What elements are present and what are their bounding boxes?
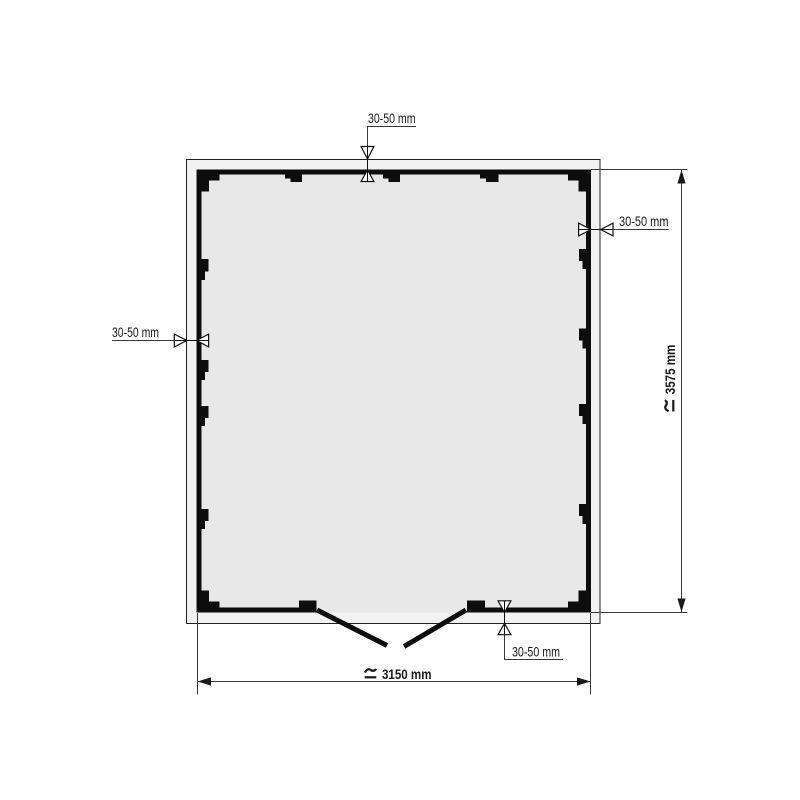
svg-text:30-50 mm: 30-50 mm [619, 213, 669, 229]
svg-text:30-50 mm: 30-50 mm [512, 644, 560, 660]
svg-text:3575 mm: 3575 mm [663, 345, 679, 395]
svg-text:30-50 mm: 30-50 mm [112, 324, 159, 340]
svg-text:30-50 mm: 30-50 mm [368, 110, 416, 126]
svg-text:3150 mm: 3150 mm [382, 667, 432, 683]
